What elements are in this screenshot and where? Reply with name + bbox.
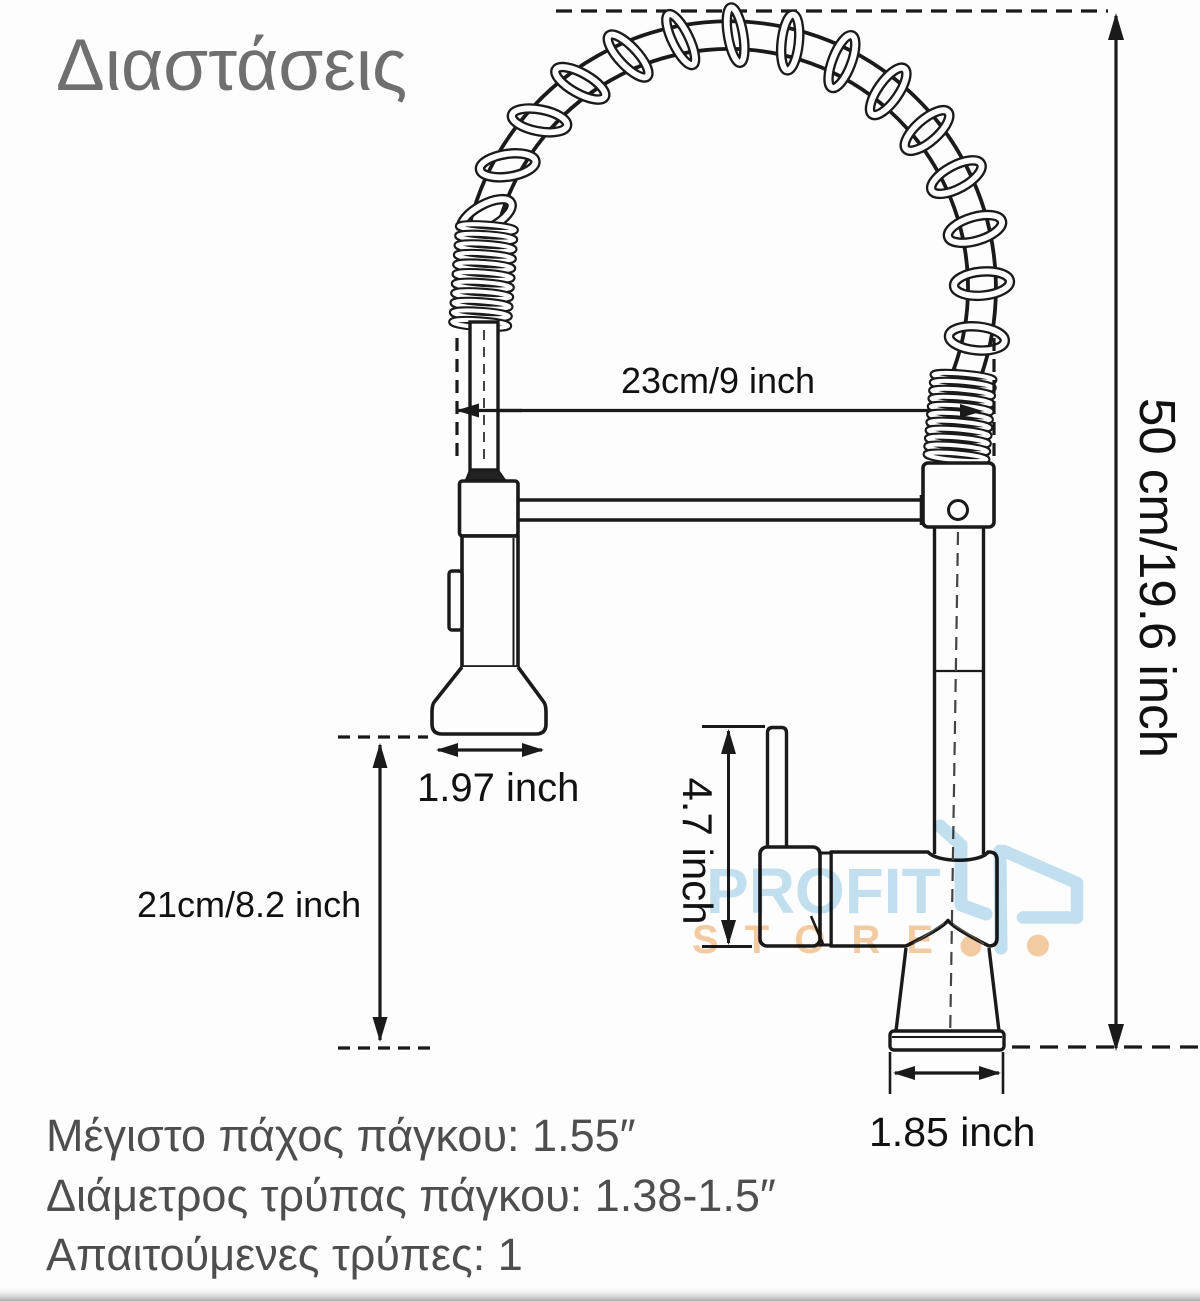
svg-text:PROFIT: PROFIT — [706, 855, 941, 927]
svg-text:1.97 inch: 1.97 inch — [417, 766, 579, 810]
svg-text:50 cm/19.6 inch: 50 cm/19.6 inch — [1129, 398, 1186, 758]
svg-text:21cm/8.2 inch: 21cm/8.2 inch — [137, 884, 361, 925]
svg-text:Απαιτούμενες τρύπες: 1: Απαιτούμενες τρύπες: 1 — [46, 1229, 523, 1280]
svg-text:Μέγιστο πάχος πάγκου: 1.55″: Μέγιστο πάχος πάγκου: 1.55″ — [46, 1110, 636, 1161]
svg-text:23cm/9 inch: 23cm/9 inch — [621, 360, 815, 401]
svg-text:1.85 inch: 1.85 inch — [869, 1109, 1035, 1155]
svg-text:STORE: STORE — [692, 918, 959, 962]
svg-text:Διαστάσεις: Διαστάσεις — [56, 25, 407, 106]
svg-text:Διάμετρος τρύπας πάγκου: 1.38-: Διάμετρος τρύπας πάγκου: 1.38-1.5″ — [46, 1170, 776, 1221]
